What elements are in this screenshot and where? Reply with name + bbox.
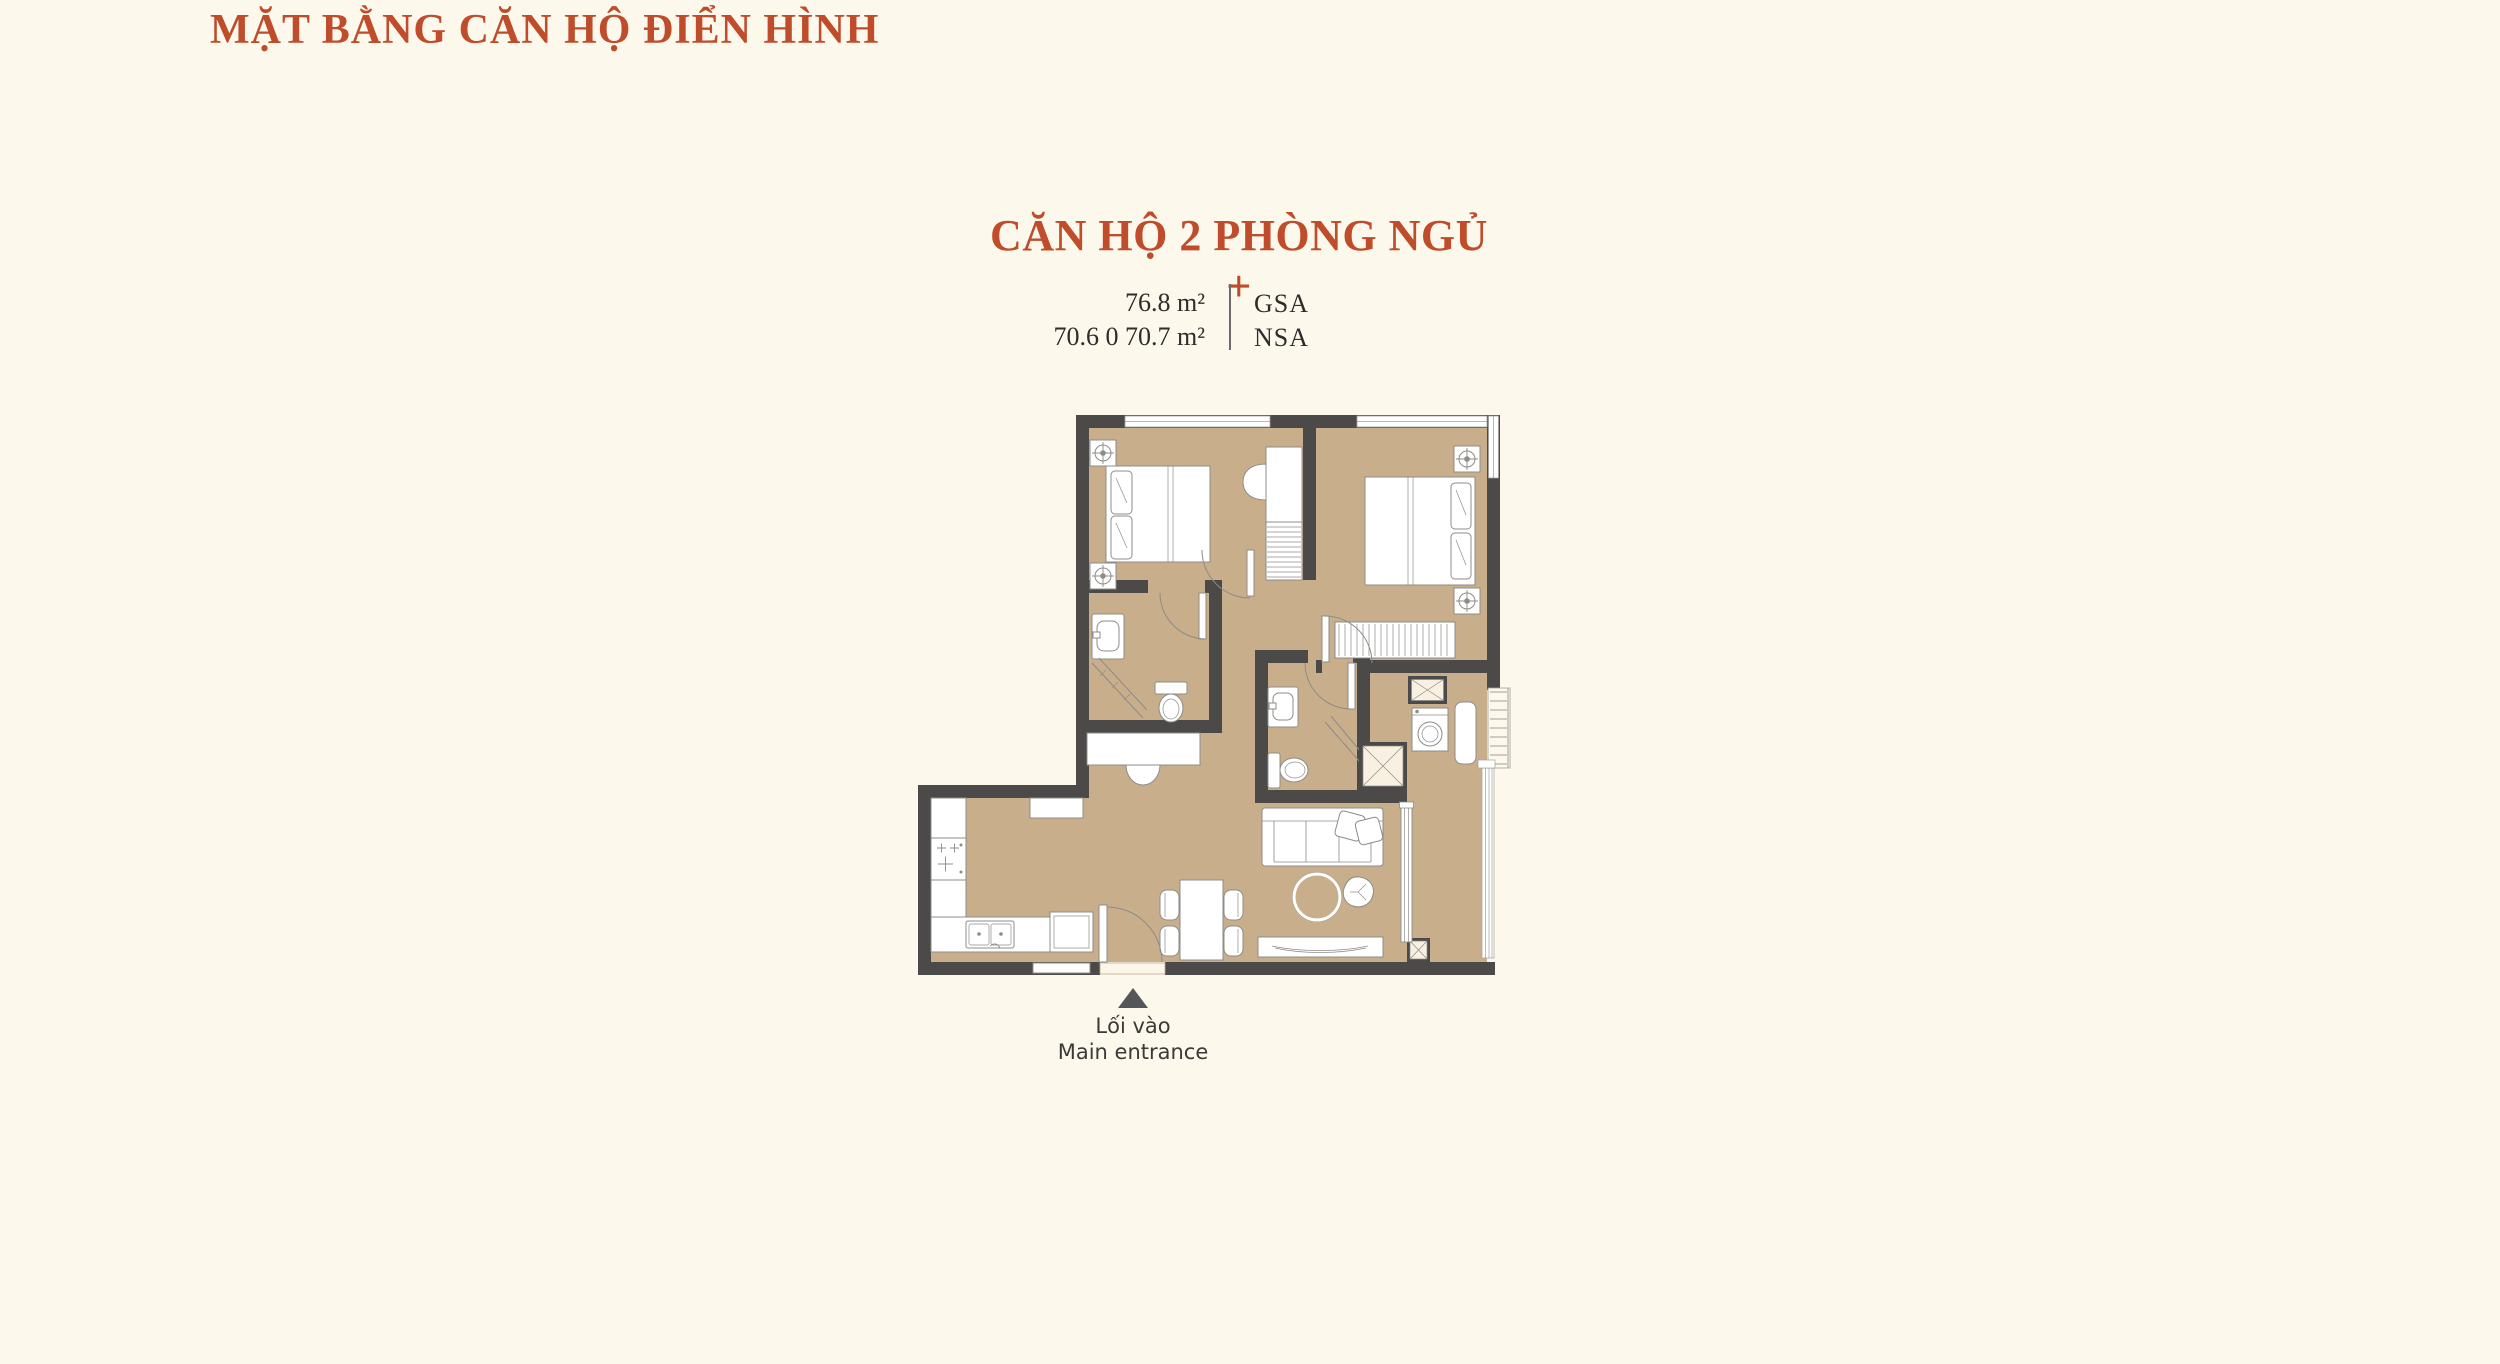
entry-threshold <box>1100 963 1165 974</box>
dining-table-icon <box>1180 880 1223 960</box>
window-bedroom-2 <box>1357 416 1487 427</box>
area-values: 76.8 m² 70.6 0 70.7 m² <box>1005 286 1205 354</box>
dining-area <box>1160 880 1243 960</box>
chair-icon <box>1224 890 1243 920</box>
ceiling-light-icon <box>1454 588 1480 614</box>
entrance-arrow-icon <box>1118 988 1148 1008</box>
chair-icon <box>1160 926 1179 956</box>
stool-icon <box>1343 877 1373 907</box>
entrance-marker: Lối vào Main entrance <box>1023 988 1243 1065</box>
upper-cabinet-icon <box>1030 798 1083 818</box>
floor-plan-drawing <box>910 400 1540 1010</box>
sofa-icon <box>1262 808 1384 866</box>
bench-icon <box>1455 702 1476 764</box>
entrance-label-en: Main entrance <box>1023 1039 1243 1065</box>
desk-icon <box>1087 733 1200 765</box>
page-canvas: MẶT BẰNG CĂN HỘ ĐIỂN HÌNH CĂN HỘ 2 PHÒNG… <box>0 0 2500 1364</box>
spec-divider-line <box>1229 284 1231 350</box>
sink-icon <box>1092 614 1124 659</box>
glass-railing <box>1482 768 1494 958</box>
sliding-door-icon <box>1400 802 1414 942</box>
tv-console-icon <box>1258 937 1383 957</box>
bed-1-icon <box>1106 466 1210 562</box>
ceiling-light-icon <box>1454 446 1480 472</box>
floor-plan <box>910 400 1540 1010</box>
wardrobe-icon <box>1335 622 1455 658</box>
window-bedroom-1 <box>1125 416 1270 427</box>
chair-icon <box>1160 890 1179 920</box>
window-bedroom-2-side <box>1489 416 1499 478</box>
bed-2-icon <box>1365 477 1475 585</box>
nsa-label: NSA <box>1254 321 1394 355</box>
chair-icon <box>1224 926 1243 956</box>
entrance-label-vi: Lối vào <box>1023 1013 1243 1039</box>
shaft-icon <box>1359 742 1407 790</box>
shoe-cabinet-icon <box>1033 963 1090 973</box>
fridge-icon <box>1050 912 1093 952</box>
gsa-value: 76.8 m² <box>1005 286 1205 320</box>
nsa-value: 70.6 0 70.7 m² <box>1005 320 1205 354</box>
ceiling-light-icon <box>1090 563 1116 589</box>
sink-icon <box>1268 687 1298 727</box>
washing-machine-icon <box>1412 708 1448 751</box>
shaft-icon <box>1408 676 1447 704</box>
gsa-label: GSA <box>1254 287 1394 321</box>
kitchen-sink-icon <box>966 921 1014 948</box>
stove-icon <box>931 838 966 880</box>
coffee-table-icon <box>1293 873 1342 922</box>
area-labels: GSA NSA <box>1254 287 1394 355</box>
ceiling-light-icon <box>1090 440 1116 466</box>
page-title: MẶT BẰNG CĂN HỘ ĐIỂN HÌNH <box>210 6 879 54</box>
